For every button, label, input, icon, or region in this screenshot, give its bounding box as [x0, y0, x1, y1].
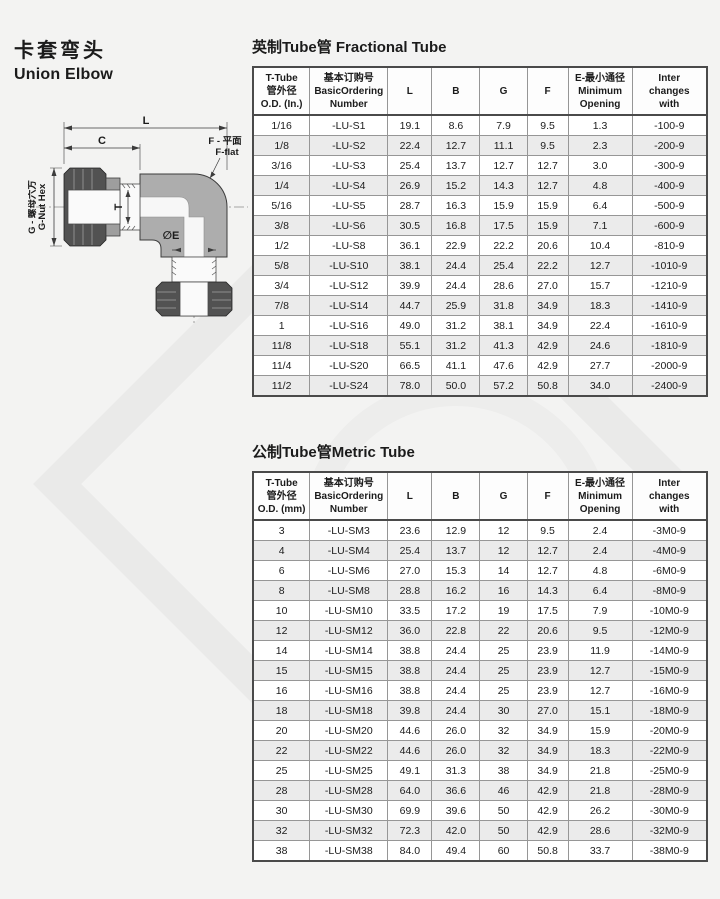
table-cell: -LU-S10: [310, 256, 388, 276]
table-cell: -LU-S14: [310, 296, 388, 316]
table-cell: 55.1: [388, 336, 432, 356]
table-cell: 38.1: [480, 316, 527, 336]
table-cell: 15.3: [432, 561, 480, 581]
table-cell: 13.7: [432, 541, 480, 561]
table-cell: 3.0: [568, 156, 632, 176]
table-cell: -LU-S6: [310, 216, 388, 236]
table-row: 30-LU-SM3069.939.65042.926.2-30M0-9: [253, 801, 707, 821]
table-cell: 10.4: [568, 236, 632, 256]
table-cell: 10: [253, 601, 310, 621]
table-cell: -810-9: [632, 236, 707, 256]
dim-c-arrow-left: [64, 146, 72, 151]
table-cell: 11/8: [253, 336, 310, 356]
table-cell: 26.0: [432, 721, 480, 741]
table-cell: 15.9: [568, 721, 632, 741]
table-cell: -LU-SM38: [310, 841, 388, 862]
table-cell: 14: [480, 561, 527, 581]
table-cell: 18: [253, 701, 310, 721]
table-cell: 16.8: [432, 216, 480, 236]
table-cell: -2400-9: [632, 376, 707, 397]
table-cell: 16: [253, 681, 310, 701]
column-header: 基本订购号BasicOrderingNumber: [310, 67, 388, 115]
table-cell: 25.4: [388, 156, 432, 176]
fractional-table: T-Tube管外径O.D. (In.)基本订购号BasicOrderingNum…: [252, 66, 708, 397]
table-cell: -1610-9: [632, 316, 707, 336]
table-cell: 24.6: [568, 336, 632, 356]
table-cell: 12.7: [568, 681, 632, 701]
table-cell: -LU-SM3: [310, 520, 388, 541]
table-cell: 32: [480, 721, 527, 741]
table-cell: -LU-SM16: [310, 681, 388, 701]
table-cell: 1/16: [253, 115, 310, 136]
dim-t-label: T: [113, 203, 125, 210]
table-cell: 8.6: [432, 115, 480, 136]
table-cell: -LU-S1: [310, 115, 388, 136]
table-cell: -30M0-9: [632, 801, 707, 821]
table-row: 32-LU-SM3272.342.05042.928.6-32M0-9: [253, 821, 707, 841]
table-cell: -LU-S12: [310, 276, 388, 296]
table-cell: 38: [480, 761, 527, 781]
table-cell: 38: [253, 841, 310, 862]
product-title-zh: 卡套弯头: [14, 34, 113, 63]
table-cell: 11.1: [480, 136, 527, 156]
table-cell: 16.3: [432, 196, 480, 216]
table-cell: 25: [480, 681, 527, 701]
table-cell: -28M0-9: [632, 781, 707, 801]
table-cell: 1.3: [568, 115, 632, 136]
column-header: E-最小通径MinimumOpening: [568, 67, 632, 115]
table-row: 18-LU-SM1839.824.43027.015.1-18M0-9: [253, 701, 707, 721]
table-cell: 16.2: [432, 581, 480, 601]
table-cell: 12.7: [527, 176, 568, 196]
tables-section: 英制Tube管 Fractional Tube T-Tube管外径O.D. (I…: [252, 36, 708, 862]
table-cell: 17.2: [432, 601, 480, 621]
table-cell: 42.9: [527, 356, 568, 376]
table-cell: -4M0-9: [632, 541, 707, 561]
metric-table: T-Tube管外径O.D. (mm)基本订购号BasicOrderingNumb…: [252, 471, 708, 862]
table-cell: 32: [480, 741, 527, 761]
table-cell: 23.9: [527, 681, 568, 701]
table-row: 5/16-LU-S528.716.315.915.96.4-500-9: [253, 196, 707, 216]
table-cell: 3: [253, 520, 310, 541]
table-cell: 72.3: [388, 821, 432, 841]
table-cell: 7/8: [253, 296, 310, 316]
table-cell: 50.8: [527, 841, 568, 862]
table-cell: 34.9: [527, 741, 568, 761]
table-cell: 84.0: [388, 841, 432, 862]
column-header: B: [432, 472, 480, 520]
table-row: 12-LU-SM1236.022.82220.69.5-12M0-9: [253, 621, 707, 641]
table-cell: 12.9: [432, 520, 480, 541]
table-cell: 12.7: [527, 156, 568, 176]
table-cell: 78.0: [388, 376, 432, 397]
table-cell: -LU-SM28: [310, 781, 388, 801]
table-cell: 12.7: [568, 661, 632, 681]
table-cell: 38.8: [388, 661, 432, 681]
table-cell: -LU-SM4: [310, 541, 388, 561]
table-cell: 50: [480, 801, 527, 821]
table-cell: 21.8: [568, 781, 632, 801]
table-row: 10-LU-SM1033.517.21917.57.9-10M0-9: [253, 601, 707, 621]
table-cell: -14M0-9: [632, 641, 707, 661]
table-row: 14-LU-SM1438.824.42523.911.9-14M0-9: [253, 641, 707, 661]
table-cell: -3M0-9: [632, 520, 707, 541]
table-cell: -LU-SM8: [310, 581, 388, 601]
table-cell: 1/8: [253, 136, 310, 156]
table-cell: -LU-SM14: [310, 641, 388, 661]
table-cell: 33.7: [568, 841, 632, 862]
table-cell: 7.9: [568, 601, 632, 621]
table-cell: 2.4: [568, 541, 632, 561]
table-cell: 25.4: [480, 256, 527, 276]
column-header: E-最小通径MinimumOpening: [568, 472, 632, 520]
table-cell: 24.4: [432, 276, 480, 296]
table-cell: 27.7: [568, 356, 632, 376]
dim-l-arrow-right: [219, 126, 227, 131]
table-cell: 18.3: [568, 296, 632, 316]
table-cell: -1010-9: [632, 256, 707, 276]
table-cell: 38.8: [388, 681, 432, 701]
table-cell: -15M0-9: [632, 661, 707, 681]
table-cell: 41.3: [480, 336, 527, 356]
table-cell: -LU-SM15: [310, 661, 388, 681]
table-cell: 24.4: [432, 701, 480, 721]
table-cell: 12: [480, 541, 527, 561]
table-cell: -2000-9: [632, 356, 707, 376]
table-cell: 25: [253, 761, 310, 781]
table-cell: -LU-S2: [310, 136, 388, 156]
dim-l-extension: [64, 122, 227, 170]
table-row: 3/8-LU-S630.516.817.515.97.1-600-9: [253, 216, 707, 236]
table-cell: 20.6: [527, 621, 568, 641]
table-cell: 17.5: [527, 601, 568, 621]
table-cell: 47.6: [480, 356, 527, 376]
column-header: Interchangeswith: [632, 472, 707, 520]
column-header: 基本订购号BasicOrderingNumber: [310, 472, 388, 520]
table-cell: -LU-S8: [310, 236, 388, 256]
table-row: 20-LU-SM2044.626.03234.915.9-20M0-9: [253, 721, 707, 741]
column-header: F: [527, 472, 568, 520]
dim-c-arrow-right: [132, 146, 140, 151]
table-cell: 42.9: [527, 821, 568, 841]
table-cell: 24.4: [432, 641, 480, 661]
fractional-table-title: 英制Tube管 Fractional Tube: [252, 36, 708, 57]
table-cell: 22.8: [432, 621, 480, 641]
table-cell: 3/8: [253, 216, 310, 236]
table-cell: -500-9: [632, 196, 707, 216]
table-cell: 44.6: [388, 721, 432, 741]
table-cell: 28.6: [568, 821, 632, 841]
table-cell: 46: [480, 781, 527, 801]
table-cell: -400-9: [632, 176, 707, 196]
table-cell: 27.0: [527, 276, 568, 296]
dim-g-arrow-bottom: [52, 238, 57, 246]
table-cell: -LU-SM18: [310, 701, 388, 721]
header-row: T-Tube管外径O.D. (mm)基本订购号BasicOrderingNumb…: [253, 472, 707, 520]
table-cell: 30: [253, 801, 310, 821]
table-cell: -LU-SM6: [310, 561, 388, 581]
table-cell: 33.5: [388, 601, 432, 621]
table-cell: -100-9: [632, 115, 707, 136]
table-row: 6-LU-SM627.015.31412.74.8-6M0-9: [253, 561, 707, 581]
table-row: 4-LU-SM425.413.71212.72.4-4M0-9: [253, 541, 707, 561]
table-cell: 1/2: [253, 236, 310, 256]
table-row: 25-LU-SM2549.131.33834.921.8-25M0-9: [253, 761, 707, 781]
table-cell: 22.9: [432, 236, 480, 256]
table-cell: -LU-S4: [310, 176, 388, 196]
table-cell: 28.6: [480, 276, 527, 296]
table-cell: 22: [253, 741, 310, 761]
table-cell: -LU-SM25: [310, 761, 388, 781]
table-cell: 4: [253, 541, 310, 561]
table-cell: 39.6: [432, 801, 480, 821]
table-cell: -20M0-9: [632, 721, 707, 741]
table-cell: 22.4: [388, 136, 432, 156]
table-cell: -25M0-9: [632, 761, 707, 781]
column-header: G: [480, 472, 527, 520]
table-cell: 38.1: [388, 256, 432, 276]
table-cell: 38.8: [388, 641, 432, 661]
table-cell: 34.0: [568, 376, 632, 397]
table-row: 1/4-LU-S426.915.214.312.74.8-400-9: [253, 176, 707, 196]
metric-table-title: 公制Tube管Metric Tube: [252, 441, 708, 462]
table-cell: 39.9: [388, 276, 432, 296]
table-cell: 15.9: [480, 196, 527, 216]
table-row: 1/16-LU-S119.18.67.99.51.3-100-9: [253, 115, 707, 136]
table-cell: 15.7: [568, 276, 632, 296]
bore-label: ∅E: [163, 230, 180, 242]
table-cell: 18.3: [568, 741, 632, 761]
fractional-table-block: 英制Tube管 Fractional Tube T-Tube管外径O.D. (I…: [252, 36, 708, 397]
table-cell: -6M0-9: [632, 561, 707, 581]
table-cell: -1210-9: [632, 276, 707, 296]
bottom-thread: [172, 257, 216, 282]
product-header: 卡套弯头 Union Elbow: [14, 34, 113, 84]
table-cell: 42.9: [527, 336, 568, 356]
column-header: B: [432, 67, 480, 115]
table-cell: 15.1: [568, 701, 632, 721]
table-cell: 16: [480, 581, 527, 601]
table-cell: 21.8: [568, 761, 632, 781]
table-cell: 49.1: [388, 761, 432, 781]
table-cell: 14.3: [480, 176, 527, 196]
table-cell: 9.5: [527, 136, 568, 156]
table-cell: 24.4: [432, 661, 480, 681]
table-cell: 64.0: [388, 781, 432, 801]
table-cell: -18M0-9: [632, 701, 707, 721]
table-cell: 36.6: [432, 781, 480, 801]
table-cell: 22.4: [568, 316, 632, 336]
header-row: T-Tube管外径O.D. (In.)基本订购号BasicOrderingNum…: [253, 67, 707, 115]
table-cell: 1: [253, 316, 310, 336]
table-cell: 25: [480, 661, 527, 681]
table-cell: -32M0-9: [632, 821, 707, 841]
table-cell: 31.3: [432, 761, 480, 781]
table-cell: -LU-SM30: [310, 801, 388, 821]
table-cell: 12.7: [432, 136, 480, 156]
table-row: 28-LU-SM2864.036.64642.921.8-28M0-9: [253, 781, 707, 801]
table-cell: -LU-S24: [310, 376, 388, 397]
table-cell: 39.8: [388, 701, 432, 721]
column-header: L: [388, 472, 432, 520]
table-cell: 7.9: [480, 115, 527, 136]
dim-c-label: C: [98, 135, 106, 147]
table-cell: 30: [480, 701, 527, 721]
table-row: 11/8-LU-S1855.131.241.342.924.6-1810-9: [253, 336, 707, 356]
table-cell: 34.9: [527, 721, 568, 741]
table-cell: 13.7: [432, 156, 480, 176]
table-row: 38-LU-SM3884.049.46050.833.7-38M0-9: [253, 841, 707, 862]
table-cell: 4.8: [568, 561, 632, 581]
table-cell: 22.2: [527, 256, 568, 276]
nut-hex-label-en: G-Nut Hex: [37, 183, 48, 230]
table-cell: -8M0-9: [632, 581, 707, 601]
table-cell: 49.0: [388, 316, 432, 336]
table-cell: 42.9: [527, 801, 568, 821]
table-cell: -1410-9: [632, 296, 707, 316]
table-cell: 49.4: [432, 841, 480, 862]
table-cell: 5/8: [253, 256, 310, 276]
table-cell: -22M0-9: [632, 741, 707, 761]
table-cell: 23.6: [388, 520, 432, 541]
table-cell: 9.5: [527, 520, 568, 541]
table-cell: 19: [480, 601, 527, 621]
table-row: 1/8-LU-S222.412.711.19.52.3-200-9: [253, 136, 707, 156]
table-row: 3/4-LU-S1239.924.428.627.015.7-1210-9: [253, 276, 707, 296]
table-cell: 28.7: [388, 196, 432, 216]
table-cell: -300-9: [632, 156, 707, 176]
table-cell: 14.3: [527, 581, 568, 601]
flat-label-zh: F - 平面: [208, 136, 242, 147]
table-row: 3/16-LU-S325.413.712.712.73.0-300-9: [253, 156, 707, 176]
table-cell: 12.7: [480, 156, 527, 176]
table-cell: 25: [480, 641, 527, 661]
column-header: Interchangeswith: [632, 67, 707, 115]
table-cell: 24.4: [432, 256, 480, 276]
table-cell: 6: [253, 561, 310, 581]
table-cell: 60: [480, 841, 527, 862]
technical-drawing: L C T G - 螺母六方 G-Nut Hex F - 平面 F-flat ∅…: [28, 112, 256, 333]
table-cell: 36.1: [388, 236, 432, 256]
table-cell: 14: [253, 641, 310, 661]
column-header: T-Tube管外径O.D. (mm): [253, 472, 310, 520]
table-cell: -LU-S16: [310, 316, 388, 336]
table-cell: 12: [480, 520, 527, 541]
table-row: 1/2-LU-S836.122.922.220.610.4-810-9: [253, 236, 707, 256]
table-cell: 5/16: [253, 196, 310, 216]
table-cell: 42.9: [527, 781, 568, 801]
table-cell: -600-9: [632, 216, 707, 236]
table-row: 16-LU-SM1638.824.42523.912.7-16M0-9: [253, 681, 707, 701]
table-cell: 6.4: [568, 196, 632, 216]
bottom-bore: [180, 282, 208, 316]
table-cell: 27.0: [527, 701, 568, 721]
table-cell: 19.1: [388, 115, 432, 136]
table-row: 11/4-LU-S2066.541.147.642.927.7-2000-9: [253, 356, 707, 376]
table-row: 3-LU-SM323.612.9129.52.4-3M0-9: [253, 520, 707, 541]
table-cell: 7.1: [568, 216, 632, 236]
table-cell: 42.0: [432, 821, 480, 841]
dim-l-arrow-left: [64, 126, 72, 131]
column-header: T-Tube管外径O.D. (In.): [253, 67, 310, 115]
table-cell: 28.8: [388, 581, 432, 601]
table-cell: 9.5: [568, 621, 632, 641]
table-cell: 22.2: [480, 236, 527, 256]
table-cell: 25.9: [432, 296, 480, 316]
table-cell: 11/2: [253, 376, 310, 397]
table-row: 15-LU-SM1538.824.42523.912.7-15M0-9: [253, 661, 707, 681]
table-cell: 15.9: [527, 216, 568, 236]
table-cell: 3/16: [253, 156, 310, 176]
table-cell: 32: [253, 821, 310, 841]
table-cell: -LU-SM22: [310, 741, 388, 761]
table-cell: 50.0: [432, 376, 480, 397]
table-cell: 31.8: [480, 296, 527, 316]
table-cell: 4.8: [568, 176, 632, 196]
table-cell: 20.6: [527, 236, 568, 256]
flat-leader-arrow: [210, 172, 216, 179]
table-cell: 25.4: [388, 541, 432, 561]
table-cell: 31.2: [432, 316, 480, 336]
table-cell: -LU-S3: [310, 156, 388, 176]
table-row: 8-LU-SM828.816.21614.36.4-8M0-9: [253, 581, 707, 601]
table-cell: -200-9: [632, 136, 707, 156]
table-cell: -LU-S20: [310, 356, 388, 376]
column-header: F: [527, 67, 568, 115]
table-cell: 66.5: [388, 356, 432, 376]
table-row: 22-LU-SM2244.626.03234.918.3-22M0-9: [253, 741, 707, 761]
dim-l-label: L: [143, 115, 150, 127]
table-cell: 44.7: [388, 296, 432, 316]
table-cell: 22: [480, 621, 527, 641]
column-header: G: [480, 67, 527, 115]
table-cell: 24.4: [432, 681, 480, 701]
table-cell: -LU-S5: [310, 196, 388, 216]
table-cell: 41.1: [432, 356, 480, 376]
table-cell: 50.8: [527, 376, 568, 397]
table-cell: -1810-9: [632, 336, 707, 356]
column-header: L: [388, 67, 432, 115]
table-cell: 2.4: [568, 520, 632, 541]
table-cell: -10M0-9: [632, 601, 707, 621]
table-cell: 28: [253, 781, 310, 801]
table-cell: 6.4: [568, 581, 632, 601]
table-cell: -16M0-9: [632, 681, 707, 701]
table-cell: 23.9: [527, 641, 568, 661]
table-cell: 12.7: [527, 561, 568, 581]
dim-g-arrow-top: [52, 168, 57, 176]
metric-table-block: 公制Tube管Metric Tube T-Tube管外径O.D. (mm)基本订…: [252, 441, 708, 862]
table-cell: 69.9: [388, 801, 432, 821]
table-cell: 12.7: [568, 256, 632, 276]
table-cell: 57.2: [480, 376, 527, 397]
table-cell: 44.6: [388, 741, 432, 761]
table-row: 11/2-LU-S2478.050.057.250.834.0-2400-9: [253, 376, 707, 397]
table-row: 1-LU-S1649.031.238.134.922.4-1610-9: [253, 316, 707, 336]
table-cell: 15.2: [432, 176, 480, 196]
table-cell: 12.7: [527, 541, 568, 561]
table-cell: 1/4: [253, 176, 310, 196]
table-cell: -LU-S18: [310, 336, 388, 356]
table-cell: 34.9: [527, 761, 568, 781]
table-cell: 17.5: [480, 216, 527, 236]
table-row: 7/8-LU-S1444.725.931.834.918.3-1410-9: [253, 296, 707, 316]
table-cell: -12M0-9: [632, 621, 707, 641]
flat-label-en: F-flat: [215, 147, 239, 158]
table-cell: 23.9: [527, 661, 568, 681]
table-cell: 12: [253, 621, 310, 641]
table-cell: -LU-SM12: [310, 621, 388, 641]
